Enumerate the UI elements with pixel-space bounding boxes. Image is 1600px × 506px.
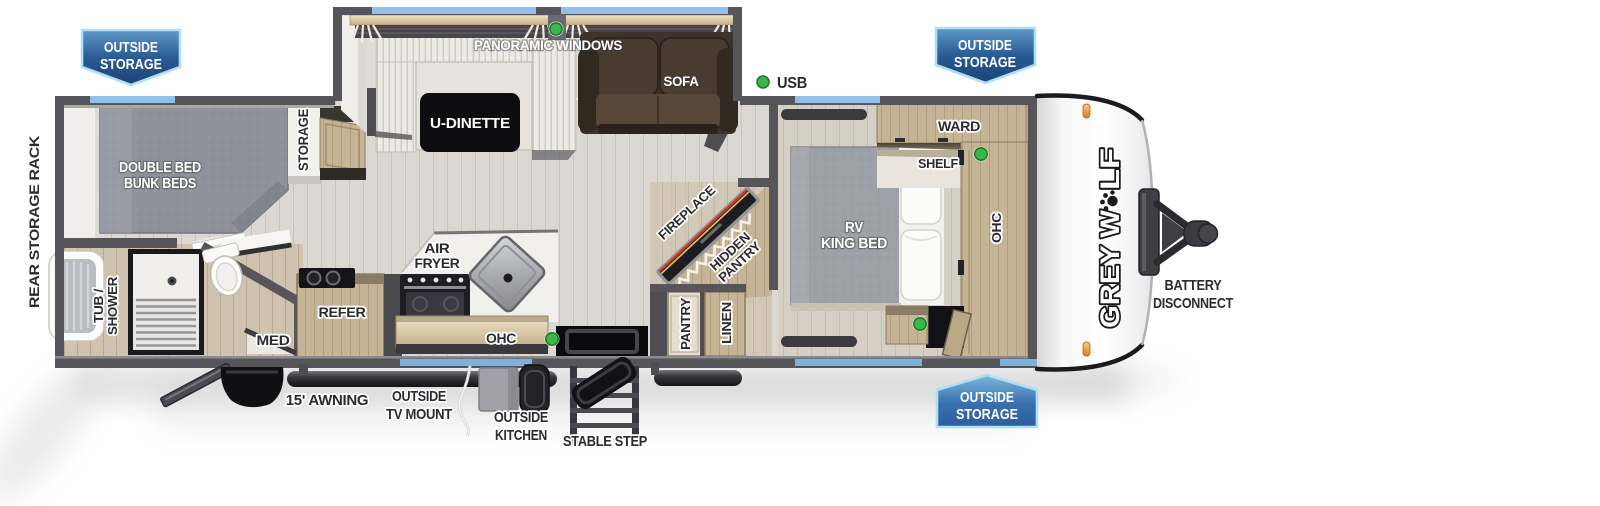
svg-text:OHC: OHC — [989, 212, 1004, 243]
svg-text:FRYER: FRYER — [415, 255, 460, 271]
svg-text:STORAGE: STORAGE — [954, 54, 1016, 71]
svg-text:DOUBLE BED: DOUBLE BED — [119, 159, 201, 176]
svg-text:DISCONNECT: DISCONNECT — [1153, 295, 1233, 312]
svg-text:U-DINETTE: U-DINETTE — [430, 115, 510, 132]
svg-text:OUTSIDE: OUTSIDE — [392, 388, 446, 405]
svg-text:KING BED: KING BED — [821, 235, 887, 252]
svg-text:AIR: AIR — [425, 240, 450, 256]
svg-text:STORAGE: STORAGE — [956, 406, 1018, 423]
svg-text:STORAGE: STORAGE — [295, 109, 311, 171]
svg-text:PANORAMIC WINDOWS: PANORAMIC WINDOWS — [474, 37, 622, 53]
svg-text:TUB /: TUB / — [91, 288, 106, 323]
svg-text:USB: USB — [777, 75, 807, 92]
svg-text:RV: RV — [845, 219, 863, 236]
svg-text:KITCHEN: KITCHEN — [495, 427, 547, 444]
svg-text:TV MOUNT: TV MOUNT — [386, 406, 452, 423]
svg-text:WARD: WARD — [938, 118, 980, 134]
svg-text:OUTSIDE: OUTSIDE — [958, 37, 1012, 54]
svg-text:LINEN: LINEN — [719, 302, 734, 344]
svg-text:REFER: REFER — [319, 304, 366, 320]
svg-text:BATTERY: BATTERY — [1165, 277, 1222, 294]
svg-text:LF: LF — [1095, 148, 1125, 190]
svg-text:SOFA: SOFA — [664, 73, 699, 89]
svg-text:SHELF: SHELF — [918, 156, 958, 171]
svg-text:REAR STORAGE RACK: REAR STORAGE RACK — [26, 136, 42, 308]
svg-text:PANTRY: PANTRY — [678, 297, 693, 350]
svg-text:OUTSIDE: OUTSIDE — [494, 409, 548, 426]
svg-text:OUTSIDE: OUTSIDE — [960, 389, 1014, 406]
svg-text:OUTSIDE: OUTSIDE — [104, 39, 158, 56]
svg-text:STABLE STEP: STABLE STEP — [563, 433, 647, 450]
svg-text:MED: MED — [257, 332, 290, 348]
svg-text:OHC: OHC — [486, 330, 516, 346]
svg-text:GREY W: GREY W — [1095, 209, 1125, 328]
svg-text:SHOWER: SHOWER — [105, 276, 120, 335]
svg-text:15' AWNING: 15' AWNING — [286, 392, 369, 409]
svg-text:STORAGE: STORAGE — [100, 56, 162, 73]
svg-text:BUNK BEDS: BUNK BEDS — [124, 175, 196, 192]
